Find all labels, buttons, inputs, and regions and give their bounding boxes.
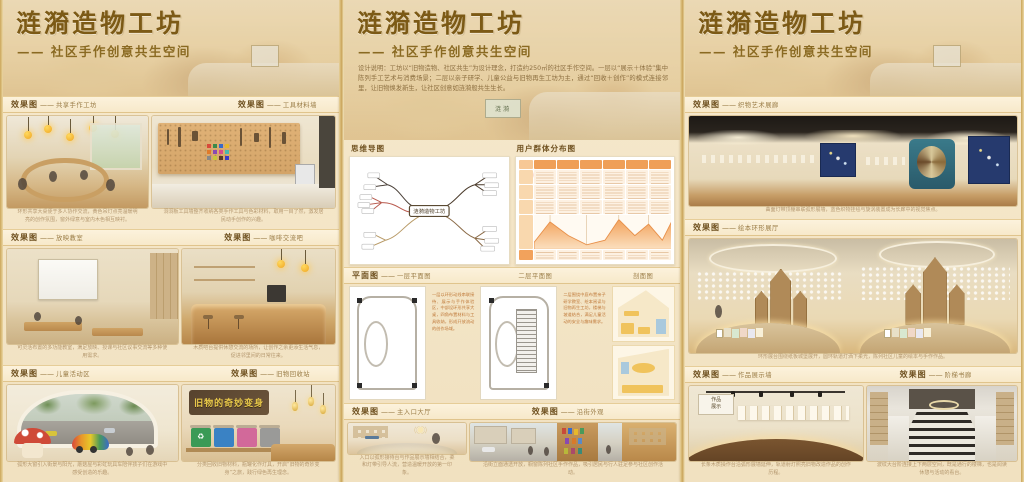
photo-caption: 弧形大窗引入街景与阳光，蘑菇屋与彩虹玩具车陪伴孩子们在游戏中感受创造的乐趣。 xyxy=(7,461,178,479)
photo-workshop xyxy=(7,116,148,208)
column xyxy=(412,383,417,388)
coffee-machine xyxy=(267,285,285,302)
render-label: 效果图——主入口大厅 xyxy=(352,406,431,417)
design-description: 设计说明：工坊以“旧物造物、社区共生”为设计理念，打造约250㎡的社区手作空间。… xyxy=(358,64,668,93)
photo-gallery-corridor xyxy=(689,116,1017,206)
photo-caption: 长条木质操作台沿弧形展墙延伸，轨道射灯照亮旧物改造作品的创作历程。 xyxy=(689,461,863,479)
stool xyxy=(203,315,213,319)
photo-caption: 洞洞板工具墙整齐收纳各类手作工具与色彩材料，取用一目了然，激发居民动手创作的兴趣… xyxy=(152,208,335,226)
photo-caption: 波纹大台阶连接上下两层空间，既是通行的楼梯，也是阅读休憩与活动的看台。 xyxy=(867,461,1017,479)
frame-wall xyxy=(629,428,666,445)
info-screen xyxy=(365,436,379,440)
recycle-icon: ♻ xyxy=(191,432,211,441)
plan-labels: 平面图——一层平面图 二层平面图 剖面图 xyxy=(344,267,680,284)
photo-coffeebar xyxy=(182,249,335,344)
tool-icon xyxy=(254,133,259,142)
castle-tower xyxy=(923,257,947,325)
tapestry-blue xyxy=(820,143,856,177)
panel-left: 涟漪造物工坊 —— 社区手作创意共生空间 效果图——共享手作工坊 效果图——工具… xyxy=(3,0,339,482)
wall-shelf xyxy=(194,279,255,281)
backdrop-counter xyxy=(870,63,1021,96)
render-label: 效果图——织物艺术展廊 xyxy=(693,99,779,110)
section-house xyxy=(618,349,670,396)
poster-title: 涟漪造物工坊 xyxy=(357,11,680,36)
rainbow-toy-car xyxy=(72,434,110,451)
wall-sign: 涟漪 xyxy=(485,99,521,118)
stair-hatch xyxy=(516,309,537,373)
tapestry-blue xyxy=(968,136,1011,184)
display-table-ring xyxy=(696,323,840,353)
pendant-lamp-icon xyxy=(66,133,74,141)
left-header: 涟漪造物工坊 —— 社区手作创意共生空间 xyxy=(3,0,339,96)
round-table xyxy=(21,158,109,203)
wood-table xyxy=(24,322,82,331)
street-car xyxy=(482,447,495,452)
spiral-sculpture xyxy=(917,146,946,178)
work-table xyxy=(271,444,335,461)
plan-outline xyxy=(357,296,417,390)
emotion-curve xyxy=(519,215,672,249)
castle-tower xyxy=(905,284,920,325)
stair-rail xyxy=(975,416,996,461)
poster-subtitle: —— 社区手作创意共生空间 xyxy=(699,41,1021,60)
receptionist xyxy=(432,433,440,444)
photo-street-view xyxy=(470,423,676,461)
section-glazing xyxy=(621,362,629,374)
pendant-lamp-icon xyxy=(24,131,32,139)
stool xyxy=(234,315,244,319)
reception-desk xyxy=(357,443,456,453)
usermap-title: 用户群体分布图 xyxy=(517,143,676,154)
castle-tower xyxy=(793,291,807,328)
left-row2: 可灵活布置的多功能教室，满足放映、授课与社区议事交流等多种使用需求。 木质吧台提… xyxy=(3,246,339,365)
usermap-cell: 用户群体分布图 xyxy=(515,142,676,265)
section-furniture xyxy=(621,323,634,333)
books xyxy=(562,428,566,434)
side-shelving xyxy=(870,392,888,445)
chandelier-icon xyxy=(412,426,430,434)
spotlight-icon xyxy=(759,391,763,397)
usermap-box xyxy=(515,156,676,265)
journey-header-row xyxy=(519,160,672,169)
interior-glimpse xyxy=(622,423,676,461)
photo-caption: 沿街立面通透开放，橱窗陈列社区手作作品，吸引居民与行人驻足参与社区创作活动。 xyxy=(470,461,676,479)
cardboard-castle xyxy=(905,257,964,325)
photo-staircase xyxy=(867,386,1017,461)
sections-column xyxy=(612,286,675,400)
right-row3-labels: 效果图——作品展示墙 效果图——阶梯书廊 xyxy=(685,366,1021,383)
poster-subtitle: —— 社区手作创意共生空间 xyxy=(17,41,339,60)
pendant-lamp-icon xyxy=(44,125,52,133)
render-label: 效果图——阶梯书廊 xyxy=(900,369,972,380)
card-street: 沿街立面通透开放，橱窗陈列社区手作作品，吸引居民与行人驻足参与社区创作活动。 xyxy=(470,423,676,479)
wall-text-panel: 作品展示 xyxy=(698,394,735,416)
bin-shelf xyxy=(186,448,281,452)
mindmap-title: 思维导图 xyxy=(351,143,510,154)
tool-icon xyxy=(192,131,198,141)
recycle-sign: 旧物的奇妙变身 xyxy=(189,390,269,416)
section-label: 剖面图 xyxy=(633,271,653,280)
right-row1: 曲面灯带顶棚串联弧形展墙，蓝色织物挂毯与旋涡装置成为长廊中的视觉焦点。 xyxy=(685,113,1021,219)
photo-caption: 曲面灯带顶棚串联弧形展墙，蓝色织物挂毯与旋涡装置成为长廊中的视觉焦点。 xyxy=(689,206,1017,217)
card-toolwall: 洞洞板工具墙整齐收纳各类手作工具与色彩材料，取用一目了然，激发居民动手创作的兴趣… xyxy=(152,116,335,226)
photo-kidsroom xyxy=(7,385,178,461)
projector-screen xyxy=(38,259,98,301)
mushroom-playhouse xyxy=(14,428,52,458)
right-header: 涟漪造物工坊 —— 社区手作创意共生空间 xyxy=(685,0,1021,96)
plan2-label: 二层平面图 xyxy=(518,271,552,280)
poster-subtitle: —— 社区手作创意共生空间 xyxy=(358,41,680,60)
render-label: 效果图——咖啡交流吧 xyxy=(224,232,303,243)
curved-counter xyxy=(689,439,863,462)
poster-title: 涟漪造物工坊 xyxy=(698,11,1021,36)
bottle-lamp-icon xyxy=(308,397,314,406)
right-row3: 作品展示 长条木质操作台沿弧形展墙延伸，轨道射灯照亮旧物改造作品的创作历程。 波… xyxy=(685,383,1021,482)
journey-row xyxy=(519,185,672,199)
card-gallery-corridor: 曲面灯带顶棚串联弧形展墙，蓝色织物挂毯与旋涡装置成为长廊中的视觉焦点。 xyxy=(689,116,1017,216)
recycle-bin-pink xyxy=(237,428,257,448)
display-shelf xyxy=(557,423,598,461)
render-label: 效果图——儿童活动区 xyxy=(11,368,90,379)
plan-note-2: 二层围绕中庭布置亲子研学教室、绘本阅读与旧物再生工坊，楼梯与坡道结合，满足儿童活… xyxy=(561,286,607,400)
render-label: 效果图——绘本环形展厅 xyxy=(693,222,779,233)
person xyxy=(106,179,115,191)
window xyxy=(90,123,142,169)
card-hall: 入口以弧形接待台与作品展示墙相结合，柔和灯带引导人流，营造温暖开放的第一印象。 xyxy=(348,423,466,479)
photo-round-room xyxy=(689,239,1017,353)
star-pattern xyxy=(820,143,856,177)
mindmap-graphic: 涟漪造物工坊 xyxy=(350,157,509,264)
right-row2: 环形展台围绕纸板城堡展开，圆环轨道灯洒下柔光，陈列社区儿童的绘本与手作作品。 xyxy=(685,236,1021,366)
section-furniture xyxy=(638,327,649,334)
photo-recycle: 旧物的奇妙变身 ♻ xyxy=(182,385,335,461)
sculpture-niche xyxy=(909,139,955,189)
display-frames xyxy=(738,406,849,420)
stair-rail xyxy=(888,416,909,461)
section-ring xyxy=(632,363,655,373)
street-car xyxy=(104,428,115,433)
column xyxy=(544,383,549,388)
section-furniture xyxy=(622,385,663,393)
card-coffee: 木质吧台提供休憩交流的场所，让创作之余更添生活气息，促进邻里间的日常往来。 xyxy=(182,249,335,362)
left-row2-labels: 效果图——放映教室 效果图——咖啡交流吧 xyxy=(3,229,339,246)
render-label: 效果图——共享手作工坊 xyxy=(11,99,97,110)
diagram-row: 思维导图 xyxy=(344,140,680,267)
left-row3: 弧形大窗引入街景与阳光，蘑菇屋与彩虹玩具车陪伴孩子们在游戏中感受创造的乐趣。 旧… xyxy=(3,382,339,482)
journey-row xyxy=(519,200,672,214)
pedestrian xyxy=(528,446,533,455)
photo-classroom xyxy=(7,249,178,344)
display-table-ring xyxy=(860,323,1011,353)
photo-caption: 可灵活布置的多功能教室，满足放映、授课与社区议事交流等多种使用需求。 xyxy=(7,344,178,362)
spotlight-icon xyxy=(818,391,822,397)
right-row2-label: 效果图——绘本环形展厅 xyxy=(685,219,1021,236)
card-workshop: 环形共享大桌便于多人协作交流，黄色吊灯点亮温暖明亮的创作氛围，窗外绿意与室内木色… xyxy=(7,116,148,226)
mushroom-stem xyxy=(22,443,43,458)
left-row1: 环形共享大桌便于多人协作交流，黄色吊灯点亮温暖明亮的创作氛围，窗外绿意与室内木色… xyxy=(3,113,339,229)
cardboard-castle xyxy=(755,269,807,328)
tool-icon xyxy=(178,127,181,147)
color-swatches xyxy=(207,144,211,148)
visitor xyxy=(715,305,722,318)
artwork-row xyxy=(702,155,814,163)
building xyxy=(511,428,536,444)
printer xyxy=(295,164,315,186)
middle-bottom-labels: 效果图——主入口大厅 效果图——沿街外观 xyxy=(344,403,680,420)
card-classroom: 可灵活布置的多功能教室，满足放映、授课与社区议事交流等多种使用需求。 xyxy=(7,249,178,362)
light-track xyxy=(706,391,845,393)
info-panel xyxy=(319,116,335,188)
card-stairs: 波纹大台阶连接上下两层空间，既是通行的楼梯，也是阅读休憩与活动的看台。 xyxy=(867,386,1017,479)
upper-mezzanine xyxy=(909,389,975,409)
workbench xyxy=(152,184,335,208)
picture-books xyxy=(716,329,723,338)
photo-caption: 分类回收旧物材料，瓶罐化作灯具，开启“旧物的奇妙变身”之旅，践行绿色再生理念。 xyxy=(182,461,335,479)
poster-title: 涟漪造物工坊 xyxy=(16,11,339,36)
card-kids: 弧形大窗引入街景与阳光，蘑菇屋与彩虹玩具车陪伴孩子们在游戏中感受创造的乐趣。 xyxy=(7,385,178,479)
street-trees xyxy=(21,394,154,422)
render-label: 效果图——作品展示墙 xyxy=(693,369,772,380)
tool-icon xyxy=(282,132,286,144)
plan-row: 一层以环形动线串联接待、展示与手作体验区，中部设环形共享大桌，四角布置材料与工具… xyxy=(344,284,680,403)
picture-books xyxy=(884,329,891,338)
mushroom-cap xyxy=(14,428,52,445)
journey-row xyxy=(519,170,672,184)
chair xyxy=(34,312,41,321)
pedestrian xyxy=(544,447,549,456)
card-display-wall: 作品展示 长条木质操作台沿弧形展墙延伸，轨道射灯照亮旧物改造作品的创作历程。 xyxy=(689,386,863,479)
card-round-room: 环形展台围绕纸板城堡展开，圆环轨道灯洒下柔光，陈列社区儿童的绘本与手作作品。 xyxy=(689,239,1017,363)
photo-display-wall: 作品展示 xyxy=(689,386,863,461)
artwork-row xyxy=(866,157,905,165)
render-label: 效果图——旧物回收站 xyxy=(231,368,310,379)
wall-shelf xyxy=(194,266,255,268)
bottle-lamp-icon xyxy=(292,402,298,411)
emotion-curve-chart xyxy=(534,215,672,249)
castle-tower xyxy=(770,269,791,328)
bar-counter xyxy=(191,304,326,344)
mindmap-box: 涟漪造物工坊 xyxy=(349,156,510,265)
render-label: 效果图——沿街外观 xyxy=(532,406,604,417)
lockers xyxy=(150,253,177,320)
plan-note-1: 一层以环形动线串联接待、展示与手作体验区，中部设环形共享大桌，四角布置材料与工具… xyxy=(430,286,476,400)
middle-header: 涟漪 涟漪造物工坊 —— 社区手作创意共生空间 设计说明：工坊以“旧物造物、社区… xyxy=(344,0,680,140)
mindmap-cell: 思维导图 xyxy=(349,142,510,265)
star-pattern xyxy=(968,136,1011,184)
recycle-bin-green: ♻ xyxy=(191,428,211,448)
plans-title: 平面图——一层平面图 xyxy=(352,270,431,281)
tool-icon xyxy=(269,127,271,148)
backdrop-counter xyxy=(188,63,339,96)
render-label: 效果图——工具材料墙 xyxy=(238,99,317,110)
photo-toolwall xyxy=(152,116,335,208)
mindmap-center-node: 涟漪造物工坊 xyxy=(413,207,446,215)
backdrop-counter xyxy=(529,92,680,140)
section-furniture xyxy=(624,311,639,316)
photo-entry-hall xyxy=(348,423,466,453)
column xyxy=(357,298,362,303)
section-drawing-2 xyxy=(612,345,675,401)
middle-bottom-row: 入口以弧形接待台与作品展示墙相结合，柔和灯带引导人流，营造温暖开放的第一印象。 xyxy=(344,420,680,482)
tool-icon xyxy=(167,129,169,145)
pedestrian xyxy=(606,445,611,454)
right-row1-label: 效果图——织物艺术展廊 xyxy=(685,96,1021,113)
child xyxy=(146,445,154,455)
tool-icon xyxy=(240,128,242,146)
photo-caption: 环形共享大桌便于多人协作交流，黄色吊灯点亮温暖明亮的创作氛围，窗外绿意与室内木色… xyxy=(7,208,148,226)
bottle-lamp-icon xyxy=(320,405,326,414)
journey-row xyxy=(519,250,672,260)
photo-caption: 环形展台围绕纸板城堡展开，圆环轨道灯洒下柔光，陈列社区儿童的绘本与手作作品。 xyxy=(689,353,1017,364)
section-glazing xyxy=(656,319,666,333)
floorplan-level2 xyxy=(480,286,557,400)
column xyxy=(357,383,362,388)
user-journey-table xyxy=(519,160,672,261)
left-row3-labels: 效果图——儿童活动区 效果图——旧物回收站 xyxy=(3,365,339,382)
section-house xyxy=(618,290,670,337)
wood-table xyxy=(92,328,143,337)
panel-right: 涟漪造物工坊 —— 社区手作创意共生空间 效果图——织物艺术展廊 曲面灯带顶棚串… xyxy=(685,0,1021,482)
spotlight-icon xyxy=(790,391,794,397)
pendant-lamp-icon xyxy=(301,264,309,272)
poster-board: 涟漪造物工坊 —— 社区手作创意共生空间 效果图——共享手作工坊 效果图——工具… xyxy=(0,0,1024,482)
column xyxy=(412,298,417,303)
side-shelving xyxy=(996,392,1014,445)
child xyxy=(126,447,133,456)
person xyxy=(18,178,27,190)
left-row1-labels: 效果图——共享手作工坊 效果图——工具材料墙 xyxy=(3,96,339,113)
column xyxy=(489,298,494,303)
photo-caption: 入口以弧形接待台与作品展示墙相结合，柔和灯带引导人流，营造温暖开放的第一印象。 xyxy=(348,454,466,480)
render-label: 效果图——放映教室 xyxy=(11,232,83,243)
pendant-lamp-icon xyxy=(277,260,285,268)
card-recycle: 旧物的奇妙变身 ♻ 分类回收旧物材料，瓶罐化作灯具，开启“旧物的奇妙变身”之旅，… xyxy=(182,385,335,479)
recycle-bin-blue xyxy=(214,428,234,448)
castle-tower xyxy=(949,284,964,325)
section-drawing-1 xyxy=(612,286,675,342)
photo-caption: 木质吧台提供休憩交流的场所，让创作之余更添生活气息，促进邻里间的日常往来。 xyxy=(182,344,335,362)
floorplan-level1 xyxy=(349,286,426,400)
panel-middle: 涟漪 涟漪造物工坊 —— 社区手作创意共生空间 设计说明：工坊以“旧物造物、社区… xyxy=(344,0,680,482)
building xyxy=(474,426,507,444)
